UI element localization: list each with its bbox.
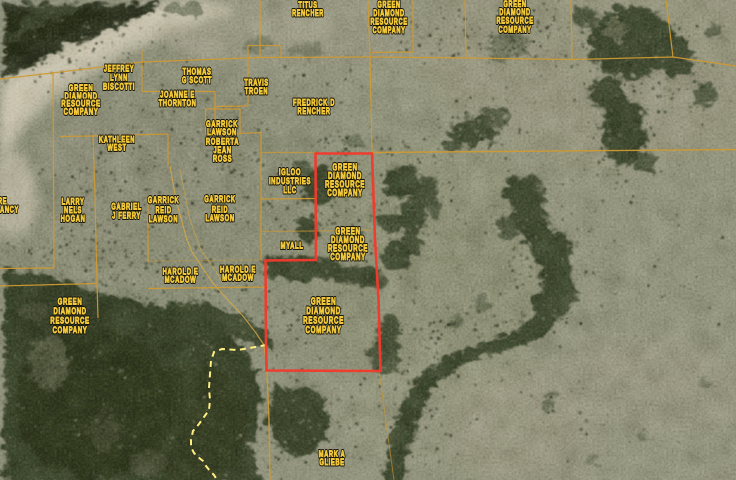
svg-text:COMPANY: COMPANY [327,188,363,199]
svg-text:RENCHER: RENCHER [292,8,324,19]
svg-text:HOGAN: HOGAN [61,213,86,224]
svg-text:COMPANY: COMPANY [372,25,405,36]
svg-text:MYALL: MYALL [280,240,303,251]
svg-text:COMPANY: COMPANY [330,252,366,263]
svg-text:J FERRY: J FERRY [112,210,141,221]
svg-text:BISCOTTI: BISCOTTI [103,81,135,92]
svg-text:LAWSON: LAWSON [149,214,178,225]
svg-text:WEST: WEST [107,142,126,153]
svg-text:COMPANY: COMPANY [498,24,531,35]
svg-text:TROEN: TROEN [245,86,268,97]
svg-text:LLC: LLC [283,185,296,196]
svg-text:MCADOW: MCADOW [222,272,254,283]
svg-text:THORNTON: THORNTON [159,98,197,109]
svg-text:ANCY: ANCY [0,204,19,215]
svg-text:MCADOW: MCADOW [165,274,197,285]
svg-text:G SCOTT: G SCOTT [182,75,212,86]
svg-text:ROSS: ROSS [213,153,232,164]
svg-text:RENCHER: RENCHER [297,105,330,116]
svg-text:COMPANY: COMPANY [64,106,99,117]
svg-text:COMPANY: COMPANY [53,325,88,336]
svg-text:COMPANY: COMPANY [305,323,341,335]
svg-text:GLIEBE: GLIEBE [319,457,344,468]
svg-text:GARRICK: GARRICK [204,194,235,205]
svg-text:LAWSON: LAWSON [205,213,234,224]
